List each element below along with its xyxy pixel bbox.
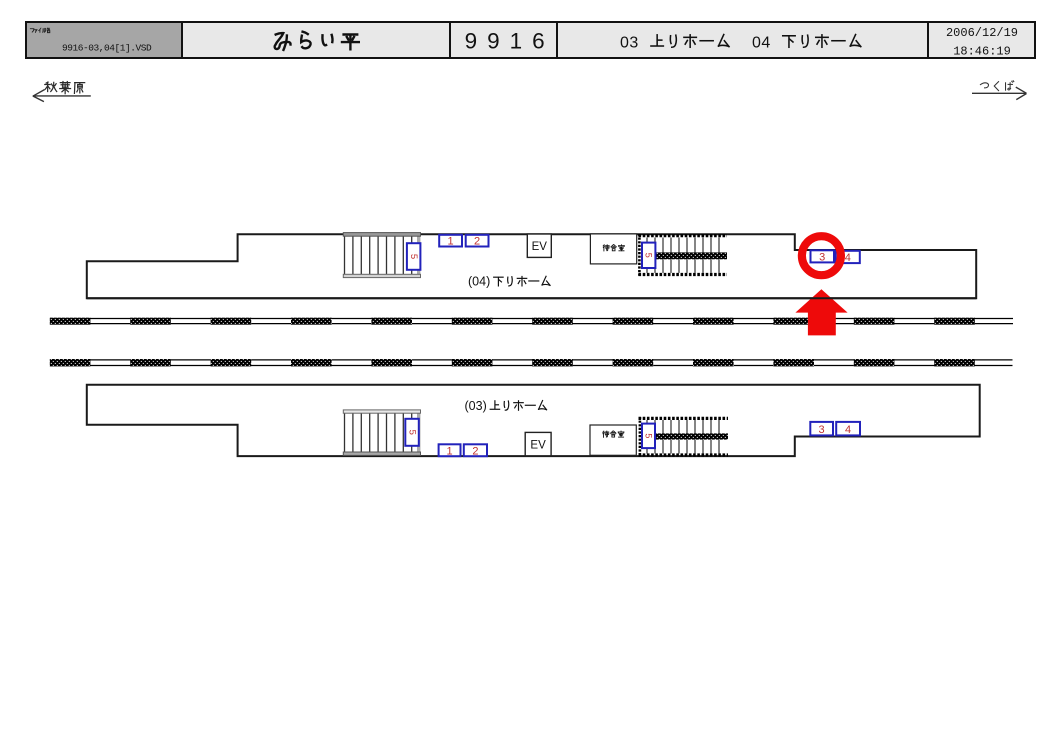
svg-text:03: 03 <box>620 34 639 51</box>
svg-text:2: 2 <box>474 236 480 248</box>
svg-text:9916: 9916 <box>465 29 555 54</box>
svg-text:18:46:19: 18:46:19 <box>953 44 1011 58</box>
svg-text:9916-03,04[1].VSD: 9916-03,04[1].VSD <box>62 42 152 53</box>
svg-text:1: 1 <box>448 236 454 248</box>
svg-text:5: 5 <box>407 430 418 435</box>
svg-text:(04): (04) <box>468 275 490 289</box>
svg-text:4: 4 <box>845 252 851 264</box>
svg-text:5: 5 <box>644 433 654 438</box>
svg-text:4: 4 <box>845 424 851 436</box>
svg-text:2006/12/19: 2006/12/19 <box>946 26 1018 40</box>
svg-text:5: 5 <box>408 254 419 259</box>
svg-text:3: 3 <box>819 424 825 436</box>
svg-text:1: 1 <box>446 445 452 457</box>
svg-text:3: 3 <box>819 251 825 263</box>
svg-text:EV: EV <box>530 440 546 452</box>
svg-text:(03): (03) <box>465 399 487 413</box>
svg-text:5: 5 <box>644 253 654 258</box>
svg-text:04: 04 <box>752 34 771 51</box>
svg-text:EV: EV <box>532 241 548 253</box>
svg-text:2: 2 <box>472 445 478 457</box>
